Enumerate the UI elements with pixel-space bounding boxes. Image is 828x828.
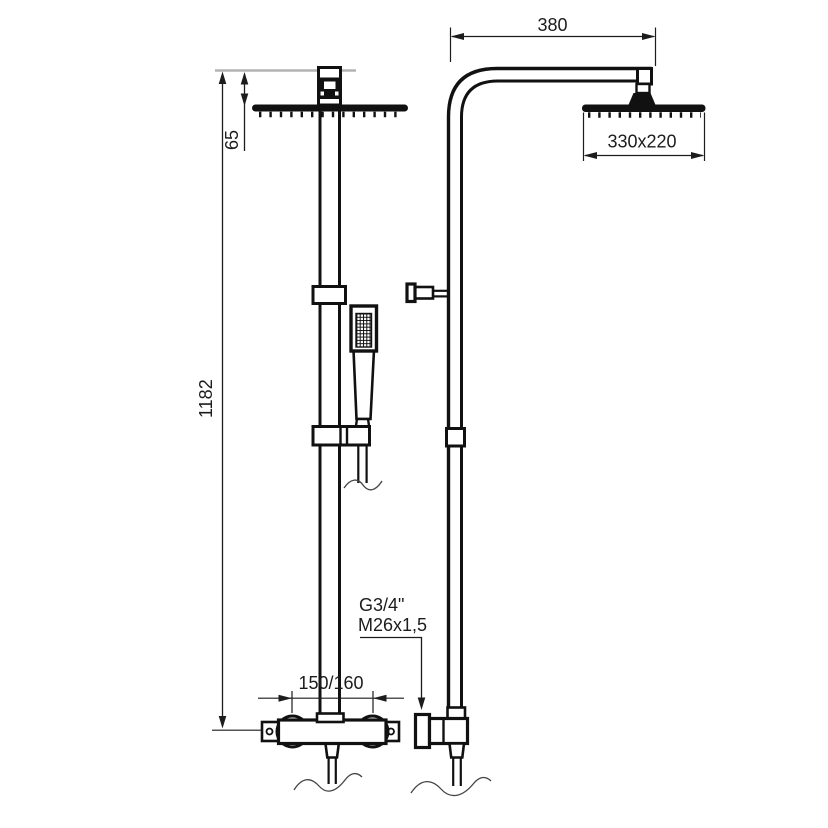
dimension-label-65: 65: [222, 130, 242, 150]
mixer-side: [262, 714, 399, 792]
arrow-up: [219, 72, 227, 85]
mixer-body: [279, 720, 387, 744]
connection-thread-callout: G3/4" M26x1,5: [358, 595, 427, 710]
front-view: 380 330x220: [407, 15, 706, 796]
dimension-label-150-160: 150/160: [298, 673, 363, 693]
elbow-outlet: [450, 744, 465, 758]
elbow-union-nut: [448, 708, 466, 719]
dimension-column-height: 1182: [196, 72, 263, 731]
wall-elbow: [411, 708, 491, 796]
arrow-up: [241, 72, 249, 85]
riser-column-side: [320, 100, 340, 716]
arrow-right: [279, 695, 293, 702]
slider-block-front: [447, 429, 465, 447]
arm-end-connector: [628, 69, 656, 107]
dimension-label-1182: 1182: [196, 379, 216, 418]
diverter-knob: [407, 284, 449, 302]
elbow-body: [430, 719, 468, 744]
elbow-break-line: [411, 777, 491, 795]
drawing-canvas: 1182 65 150/160 G3/4" M26x1,5: [0, 0, 828, 828]
hand-shower-holder: [313, 427, 370, 446]
dimension-label-330x220: 330x220: [607, 132, 676, 152]
ceiling-connector: [319, 68, 341, 106]
upper-slider-bracket: [313, 287, 346, 304]
thread-label-m26: M26x1,5: [358, 615, 427, 635]
dimension-label-380: 380: [537, 15, 567, 35]
overhead-shower-side: [252, 105, 408, 112]
dimension-arm-reach: 380: [451, 15, 656, 66]
leader-arrow-down: [418, 698, 426, 711]
arrow-left: [451, 33, 465, 40]
shower-column-technical-drawing: 1182 65 150/160 G3/4" M26x1,5: [0, 0, 828, 828]
arrow-left: [584, 152, 598, 159]
hand-shower: [351, 306, 377, 429]
wall-plate: [416, 715, 430, 748]
hose-break-line: [344, 480, 382, 490]
arrow-right: [691, 152, 705, 159]
arrow-down: [241, 94, 249, 107]
hand-shower-handle: [354, 350, 375, 419]
arrow-down: [219, 716, 227, 729]
hand-shower-spray-face: [356, 314, 372, 348]
side-view: 1182 65 150/160 G3/4" M26x1,5: [196, 68, 427, 792]
overhead-shower-front: [582, 105, 706, 113]
arrow-right: [642, 33, 656, 40]
hand-shower-hose: [344, 446, 382, 490]
mixer-inlet: [317, 714, 344, 723]
riser-pipe-front: [449, 69, 652, 717]
dimension-head-size: 330x220: [584, 113, 705, 162]
arrow-left: [373, 695, 387, 702]
mixer-outlet: [326, 744, 339, 758]
thread-label-g34: G3/4": [359, 595, 404, 615]
head-swivel-nut: [628, 93, 656, 106]
